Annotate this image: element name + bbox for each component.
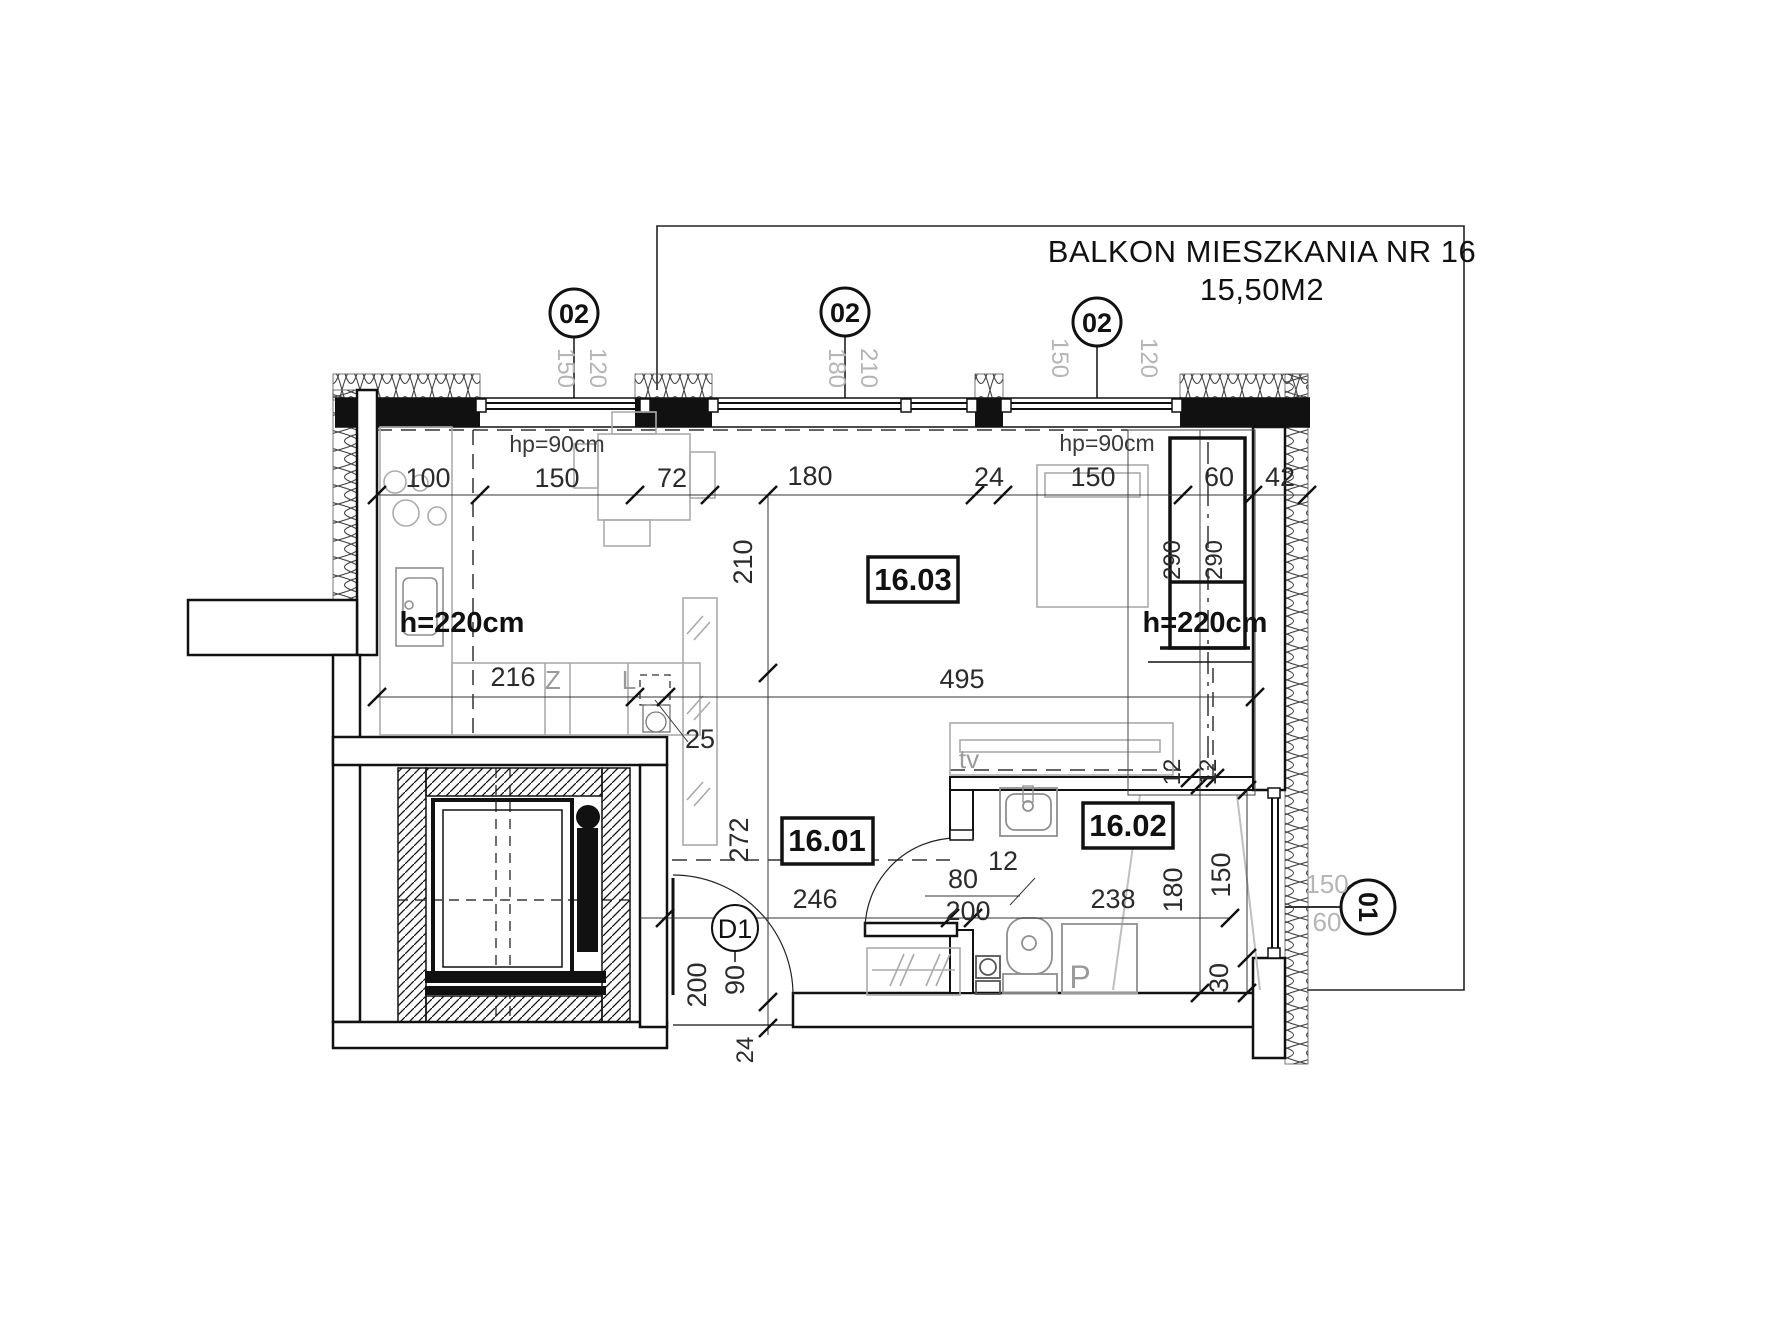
dim-bath-30: 30 — [1204, 963, 1234, 993]
dim-25: 25 — [685, 724, 715, 754]
marker-window1: 02 — [559, 299, 589, 329]
dim-bath-12b: 12 — [1195, 759, 1222, 786]
dim-246: 246 — [792, 884, 837, 914]
elevator-equipment-icon — [576, 805, 600, 829]
elevator-shaft — [398, 768, 630, 1022]
bath-sink — [1000, 788, 1057, 836]
dim-entry-24: 24 — [732, 1037, 759, 1064]
dim-top-100: 100 — [405, 463, 450, 493]
marker-window3: 02 — [1082, 308, 1112, 338]
dim-495: 495 — [939, 664, 984, 694]
shower-symbol: P — [1069, 959, 1090, 995]
dim-238: 238 — [1090, 884, 1135, 914]
marker-entry-door: D1 — [718, 914, 753, 944]
marker-window3-h: 120 — [1135, 338, 1162, 378]
marker-window3-w: 150 — [1046, 338, 1073, 378]
toilet — [1007, 918, 1052, 974]
room-label-bathroom: 16.02 — [1089, 808, 1167, 843]
dim-bath-12a: 12 — [1159, 759, 1186, 786]
fridge-symbol: L — [622, 665, 636, 695]
marker-window4-h: 60 — [1313, 907, 1342, 937]
parapet-note-right: hp=90cm — [1059, 430, 1154, 456]
elevator-door — [425, 971, 606, 983]
height-note-right: h=220cm — [1143, 607, 1268, 639]
dim-entry-90: 90 — [720, 965, 750, 995]
bath-door-swing — [865, 838, 957, 930]
room-label-hall: 16.01 — [788, 823, 866, 858]
cooktop-icon — [384, 471, 406, 493]
marker-window2: 02 — [830, 298, 860, 328]
tv-label: tv — [959, 744, 979, 774]
marker-window2-w: 180 — [823, 348, 850, 388]
floor-plan-page: BALKON MIESZKANIA NR 16 15,50M2 — [0, 0, 1768, 1319]
marker-window1-w: 150 — [552, 348, 579, 388]
elevator-car — [433, 800, 572, 977]
window-mullions — [476, 399, 1182, 412]
dim-bathdoor-80: 80 — [948, 864, 978, 894]
height-note-left: h=220cm — [400, 607, 525, 639]
room-label-main: 16.03 — [874, 562, 952, 597]
sink-symbol: Z — [545, 665, 561, 695]
dim-216: 216 — [490, 662, 535, 692]
dim-210: 210 — [728, 539, 758, 584]
dim-top-60: 60 — [1204, 462, 1234, 492]
floor-plan-drawing: BALKON MIESZKANIA NR 16 15,50M2 — [0, 0, 1768, 1319]
marker-window2-h: 210 — [855, 348, 882, 388]
dim-top-180: 180 — [787, 461, 832, 491]
wardrobe-dim-2: 290 — [1201, 540, 1228, 580]
walls — [188, 390, 1310, 1058]
dim-top-150a: 150 — [534, 463, 579, 493]
room-labels: 16.03 16.01 16.02 — [782, 557, 1173, 864]
dim-bath-150: 150 — [1206, 852, 1236, 897]
wardrobe-dim-1: 290 — [1159, 540, 1186, 580]
balcony-title: BALKON MIESZKANIA NR 16 — [1048, 234, 1476, 269]
dim-bath-180: 180 — [1158, 867, 1188, 912]
marker-window1-h: 120 — [584, 348, 611, 388]
marker-window4-w: 150 — [1305, 869, 1348, 899]
dim-top-150b: 150 — [1070, 462, 1115, 492]
balcony-area: 15,50M2 — [1200, 272, 1324, 307]
tv-cabinet — [950, 723, 1173, 775]
dim-top-42: 42 — [1265, 462, 1295, 492]
dim-bathdoor-12: 12 — [988, 846, 1018, 876]
marker-window4: 01 — [1353, 892, 1383, 922]
dim-top-72: 72 — [657, 463, 687, 493]
parapet-note-left: hp=90cm — [509, 431, 604, 457]
dim-272: 272 — [724, 817, 754, 862]
dim-entry-200: 200 — [682, 962, 712, 1007]
dim-top-24: 24 — [974, 462, 1004, 492]
dim-bathdoor-200: 200 — [945, 896, 990, 926]
